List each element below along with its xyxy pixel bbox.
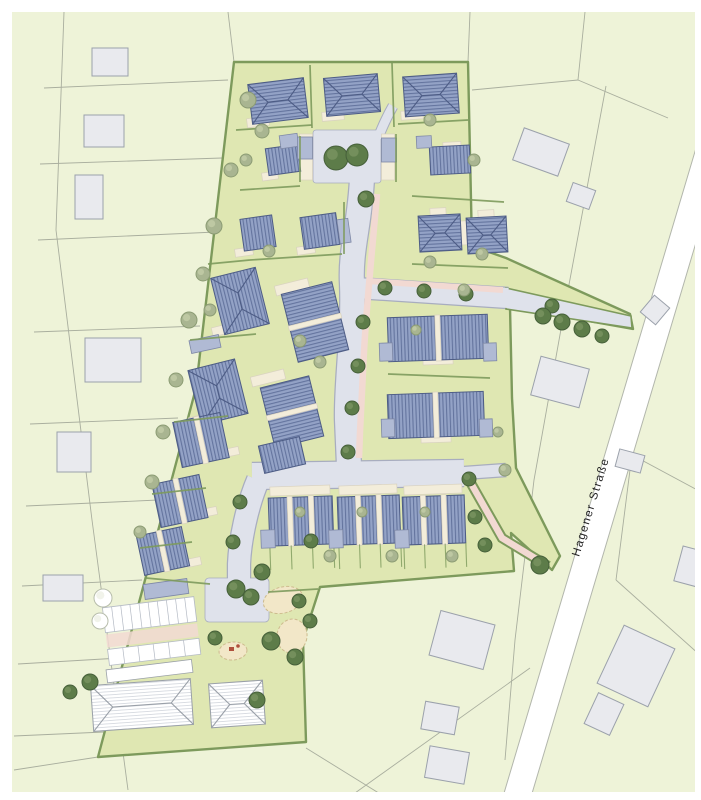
tree-icon: [82, 674, 98, 690]
tree-icon: [262, 632, 280, 650]
tree-icon: [468, 154, 480, 166]
house-gable: [265, 144, 300, 175]
existing-building: [43, 575, 83, 601]
house-garage: [416, 136, 432, 149]
house-gable: [429, 145, 470, 175]
tree-icon: [63, 685, 77, 699]
play-equipment: [229, 647, 234, 651]
tree-icon: [478, 538, 492, 552]
tree-icon: [224, 163, 238, 177]
tree-icon: [254, 564, 270, 580]
house-gable: [300, 213, 340, 250]
tree-icon: [531, 556, 549, 574]
tree-icon: [554, 314, 570, 330]
house-gable: [387, 390, 485, 439]
tree-icon: [458, 284, 470, 296]
tree-icon: [476, 248, 488, 260]
tree-icon: [595, 329, 609, 343]
tree-icon: [446, 550, 458, 562]
tree-icon: [208, 631, 222, 645]
site-plan-page: Hagener Straße: [0, 0, 701, 800]
existing-building: [85, 338, 141, 382]
tree-icon: [240, 154, 252, 166]
tree-icon: [358, 191, 374, 207]
tree-icon: [357, 507, 367, 517]
tree-icon: [233, 495, 247, 509]
tree-icon: [420, 507, 430, 517]
house-garage: [279, 133, 299, 148]
tree-icon: [346, 144, 368, 166]
site-plan-map: Hagener Straße: [0, 0, 701, 800]
play-equipment: [236, 644, 240, 648]
house-garage: [395, 530, 410, 548]
tree-icon: [468, 510, 482, 524]
house-hip: [323, 74, 380, 117]
tree-icon: [292, 594, 306, 608]
existing-building: [421, 701, 459, 734]
tree-icon: [499, 464, 511, 476]
existing-building: [84, 115, 124, 147]
tree-icon: [156, 425, 170, 439]
tree-icon: [227, 580, 245, 598]
tree-icon: [462, 472, 476, 486]
house-hip: [403, 73, 460, 117]
tree-icon: [295, 507, 305, 517]
tree-icon: [341, 445, 355, 459]
tree-icon: [249, 692, 265, 708]
house-hip: [466, 216, 508, 254]
tree-icon: [417, 284, 431, 298]
house-garage: [483, 343, 497, 361]
parking-lot: [98, 597, 202, 683]
tree-icon: [263, 245, 275, 257]
tree-icon: [345, 401, 359, 415]
tree-icon: [424, 114, 436, 126]
tree-icon: [294, 335, 306, 347]
house-hip: [248, 78, 308, 125]
house-whitehip: [91, 679, 194, 732]
tree-icon: [92, 613, 108, 629]
house-garage: [261, 530, 276, 548]
tree-icon: [204, 304, 216, 316]
tree-icon: [145, 475, 159, 489]
tree-icon: [574, 321, 590, 337]
tree-icon: [287, 649, 303, 665]
tree-icon: [206, 218, 222, 234]
tree-icon: [196, 267, 210, 281]
tree-icon: [303, 614, 317, 628]
existing-building: [425, 746, 470, 784]
existing-building: [57, 432, 91, 472]
tree-icon: [181, 312, 197, 328]
tree-icon: [356, 315, 370, 329]
house-garage: [382, 138, 397, 162]
house-hip: [418, 214, 462, 252]
tree-icon: [351, 359, 365, 373]
tree-icon: [386, 550, 398, 562]
tree-icon: [304, 534, 318, 548]
house-garage: [479, 419, 493, 437]
tree-icon: [94, 589, 112, 607]
existing-building: [92, 48, 128, 76]
tree-icon: [255, 124, 269, 138]
tree-icon: [378, 281, 392, 295]
house-garage: [329, 530, 344, 548]
tree-icon: [243, 589, 259, 605]
tree-icon: [424, 256, 436, 268]
tree-icon: [411, 325, 421, 335]
tree-icon: [324, 550, 336, 562]
tree-icon: [324, 146, 348, 170]
house-garage: [381, 419, 395, 437]
house-gable: [387, 313, 489, 362]
tree-icon: [314, 356, 326, 368]
tree-icon: [226, 535, 240, 549]
tree-icon: [134, 526, 146, 538]
tree-icon: [535, 308, 551, 324]
tree-icon: [240, 92, 256, 108]
tree-icon: [169, 373, 183, 387]
existing-building: [75, 175, 103, 219]
tree-icon: [493, 427, 503, 437]
house-garage: [379, 343, 393, 361]
